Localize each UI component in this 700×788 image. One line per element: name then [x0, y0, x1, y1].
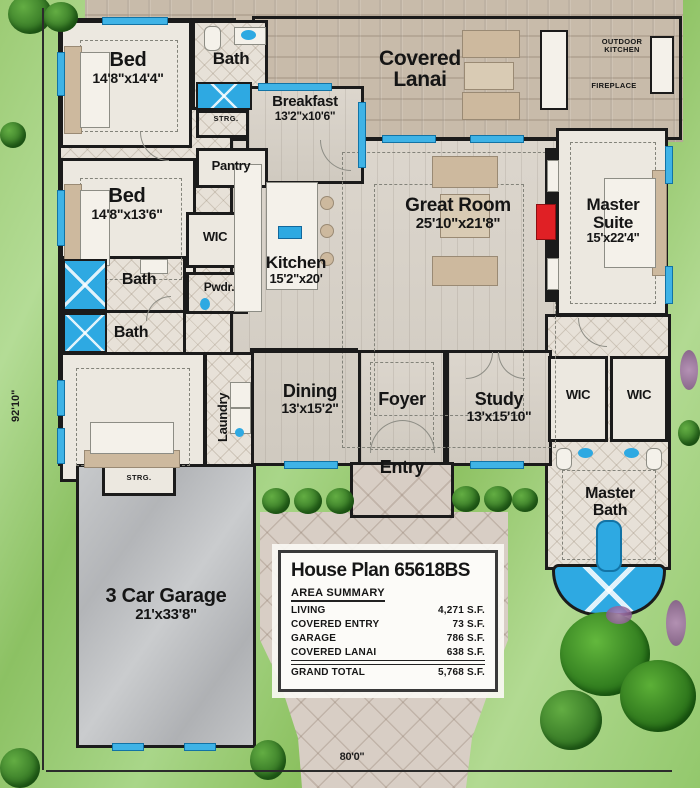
bath-a-shower [63, 259, 107, 311]
kitchen-sink [278, 226, 302, 239]
area-value: 638 S.F. [447, 647, 485, 658]
room-dims: 13'2"x10'6" [272, 110, 338, 122]
area-label: LIVING [291, 605, 326, 616]
mb-sink-left [578, 448, 593, 458]
bath-b-shower [63, 313, 107, 353]
bath-a-label: Bath [122, 272, 156, 289]
laundry-washer-door [235, 428, 244, 437]
kitchen-label: Kitchen 15'2"x20' [266, 254, 326, 285]
garage-label: 3 Car Garage 21'x33'8" [106, 586, 227, 622]
bush [452, 486, 480, 512]
room-name: 3 Car Garage [106, 586, 227, 607]
study-label: Study 13'x15'10" [467, 390, 532, 423]
room-name: Bed [92, 50, 163, 71]
pantry-label: Pantry [212, 159, 251, 173]
area-row-garage: GARAGE 786 S.F. [291, 633, 485, 644]
window [284, 461, 338, 469]
wic-master-2-label: WIC [627, 388, 651, 402]
bath-top-toilet [204, 26, 221, 51]
window [57, 380, 65, 416]
master-bath-label: Master Bath [575, 486, 645, 519]
room-name: Laundry [216, 384, 230, 450]
room-dims: 13'x15'2" [281, 401, 338, 416]
foyer-label: Foyer [378, 390, 426, 409]
plan-info-box: House Plan 65618BS AREA SUMMARY LIVING 4… [278, 550, 498, 692]
area-value: 5,768 S.F. [438, 667, 485, 678]
window [665, 266, 673, 304]
laundry-washer [230, 382, 251, 408]
covered-lanai-label: Covered Lanai [360, 48, 480, 90]
bush [326, 488, 354, 514]
window [382, 135, 436, 143]
wic-master-1-label: WIC [566, 388, 590, 402]
room-name: Bed [91, 186, 162, 207]
room-name: Master Suite [574, 196, 652, 231]
great-room-label: Great Room 25'10"x21'8" [405, 196, 511, 231]
window [57, 428, 65, 464]
area-label: COVERED LANAI [291, 647, 376, 658]
lanai-sofa-2 [462, 92, 520, 120]
mb-sink-right [624, 448, 639, 458]
outdoor-kitchen-counter [650, 36, 674, 94]
bush [294, 488, 322, 514]
window [102, 17, 168, 25]
window [57, 190, 65, 246]
palm-tree [620, 660, 696, 732]
window [57, 52, 65, 96]
window [258, 83, 332, 91]
media-wall-niche-2 [547, 258, 559, 290]
window [470, 461, 524, 469]
floor-plan-canvas: 92'10" 80'0" [0, 0, 700, 788]
room-dims: 15'2"x20' [266, 272, 326, 286]
bedroom-2-label: Bed 14'8"x13'6" [91, 186, 162, 221]
window [470, 135, 524, 143]
bedroom-3-mattress [90, 422, 174, 454]
entry-label: Entry [380, 458, 425, 477]
room-name: Great Room [405, 196, 511, 216]
storage-top-label: STRG. [214, 115, 239, 123]
dining-label: Dining 13'x15'2" [281, 382, 338, 415]
area-value: 786 S.F. [447, 633, 485, 644]
area-label: GARAGE [291, 633, 336, 644]
dimension-line-horizontal [46, 770, 672, 772]
master-bath-tub [596, 520, 622, 572]
area-row-covered-entry: COVERED ENTRY 73 S.F. [291, 619, 485, 630]
bush [262, 488, 290, 514]
area-label: COVERED ENTRY [291, 619, 379, 630]
kitchen-counter [234, 164, 262, 312]
bush [484, 486, 512, 512]
master-suite-label: Master Suite 15'x22'4" [574, 196, 652, 245]
great-room-sofa-top [432, 156, 498, 188]
area-row-living: LIVING 4,271 S.F. [291, 605, 485, 616]
bush [250, 740, 286, 780]
mb-toilet-left [556, 448, 572, 470]
height-dimension-label: 92'10" [10, 352, 22, 422]
kitchen-stool-2 [320, 224, 334, 238]
bush [678, 420, 700, 446]
area-value: 73 S.F. [452, 619, 485, 630]
breakfast-label: Breakfast 13'2"x10'6" [272, 94, 338, 122]
great-room-sofa-bottom [432, 256, 498, 286]
plan-title: House Plan 65618BS [291, 560, 485, 582]
bush [44, 2, 78, 32]
room-dims: 13'x15'10" [467, 409, 532, 424]
media-wall-red-feature [536, 204, 556, 240]
kitchen-stool-1 [320, 196, 334, 210]
flower-bed [606, 606, 632, 624]
wic-left-label: WIC [203, 230, 227, 244]
bath-top-label: Bath [213, 50, 250, 68]
dimension-line-vertical [42, 8, 44, 770]
dining-top-wall [250, 348, 358, 353]
outdoor-kitchen-label: OUTDOOR KITCHEN [593, 38, 651, 54]
bush [512, 488, 538, 512]
bush [0, 122, 26, 148]
window [112, 743, 144, 751]
width-dimension-label: 80'0" [340, 752, 365, 763]
powder-label: Pwdr. [204, 281, 235, 293]
area-summary-heading: AREA SUMMARY [291, 587, 385, 602]
room-dims: 14'8"x13'6" [91, 207, 162, 222]
area-value: 4,271 S.F. [438, 605, 485, 616]
room-name: Study [467, 390, 532, 409]
fireplace-label: FIREPLACE [591, 82, 636, 90]
window [184, 743, 216, 751]
bath-b-label: Bath [114, 325, 148, 342]
media-wall-niche-1 [547, 160, 559, 192]
room-dims: 15'x22'4" [574, 231, 652, 245]
bath-top-sink-basin [241, 30, 256, 40]
area-label: GRAND TOTAL [291, 667, 365, 678]
bush [0, 748, 40, 788]
area-row-grand-total: GRAND TOTAL 5,768 S.F. [291, 664, 485, 678]
bath-top-shower [196, 82, 252, 110]
powder-toilet [200, 298, 210, 310]
room-dims: 25'10"x21'8" [405, 216, 511, 232]
area-row-covered-lanai: COVERED LANAI 638 S.F. [291, 647, 485, 661]
palm-tree [540, 690, 602, 750]
storage-garage-label: STRG. [127, 474, 152, 482]
fireplace [540, 30, 568, 110]
mb-toilet-right [646, 448, 662, 470]
bedroom-1-label: Bed 14'8"x14'4" [92, 50, 163, 85]
room-dims: 21'x33'8" [106, 607, 227, 623]
room-name: Kitchen [266, 254, 326, 272]
laundry-label: Laundry [216, 384, 230, 455]
room-name: Dining [281, 382, 338, 401]
room-dims: 14'8"x14'4" [92, 71, 163, 86]
flower-bed [680, 350, 698, 390]
flower-bed [666, 600, 686, 646]
room-name: Breakfast [272, 94, 338, 110]
window [358, 102, 366, 168]
window [665, 146, 673, 184]
